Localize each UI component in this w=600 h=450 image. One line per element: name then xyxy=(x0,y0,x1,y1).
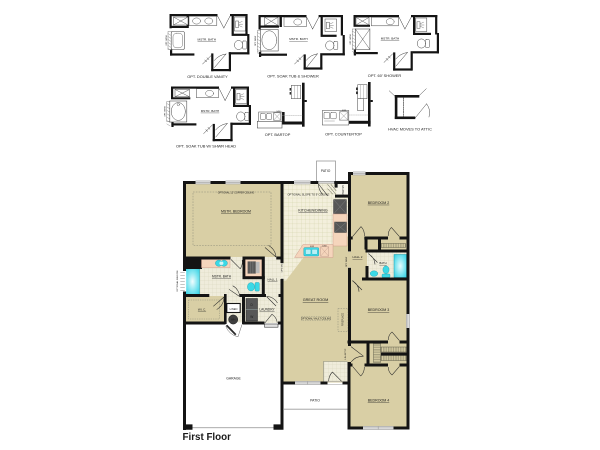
svg-text:OPTIONAL SLOPE TO 9' CEILING: OPTIONAL SLOPE TO 9' CEILING xyxy=(287,192,329,196)
svg-text:HALL 2: HALL 2 xyxy=(353,255,363,259)
svg-text:LIN./ATTIC: LIN./ATTIC xyxy=(344,348,347,359)
svg-text:OPT. WDW: OPT. WDW xyxy=(165,106,167,116)
svg-text:MSTR. BATH: MSTR. BATH xyxy=(198,38,217,42)
svg-text:GARAGE: GARAGE xyxy=(226,376,241,380)
svg-text:OPT. WDW: OPT. WDW xyxy=(166,35,168,45)
svg-text:MSTR. BATH: MSTR. BATH xyxy=(212,275,232,279)
svg-text:MSTR. BATH: MSTR. BATH xyxy=(381,37,400,41)
svg-text:OPT. DOUBLE VANITY: OPT. DOUBLE VANITY xyxy=(187,74,228,79)
svg-text:KITCHEN/DINING: KITCHEN/DINING xyxy=(298,209,328,213)
svg-text:GREAT ROOM: GREAT ROOM xyxy=(303,298,329,302)
svg-text:MSTR. BATH: MSTR. BATH xyxy=(201,109,220,113)
svg-text:PATIO: PATIO xyxy=(321,169,331,173)
svg-text:First Floor: First Floor xyxy=(183,432,232,443)
svg-text:OPT. WDW: OPT. WDW xyxy=(346,257,348,267)
svg-text:BEDROOM 3: BEDROOM 3 xyxy=(368,308,390,312)
svg-text:PANTRY: PANTRY xyxy=(342,185,345,195)
svg-text:OPT. DR.: OPT. DR. xyxy=(282,263,284,272)
svg-text:OPT. WDW: OPT. WDW xyxy=(350,34,352,44)
svg-text:OPT. SOAK TUB W/ SHWR HEAD: OPT. SOAK TUB W/ SHWR HEAD xyxy=(176,143,236,148)
svg-text:HVAC MOVES TO ATTIC: HVAC MOVES TO ATTIC xyxy=(388,127,432,132)
svg-text:WH: WH xyxy=(231,318,235,322)
svg-text:OPT. WDW: OPT. WDW xyxy=(255,36,257,46)
svg-text:MSTR. BEDROOM: MSTR. BEDROOM xyxy=(221,210,251,214)
svg-text:MSTR. BATH: MSTR. BATH xyxy=(289,37,308,41)
svg-text:OPTIONAL WINDOW: OPTIONAL WINDOW xyxy=(176,269,179,291)
svg-text:OPT. COUNTERTOP: OPT. COUNTERTOP xyxy=(325,132,362,137)
svg-text:OPT. SOAK TUB & SHOWER: OPT. SOAK TUB & SHOWER xyxy=(267,73,319,78)
svg-text:LINEN: LINEN xyxy=(230,307,238,311)
svg-text:FIREPLACE: FIREPLACE xyxy=(342,312,345,326)
svg-text:OPTIONAL VAULT CEILING: OPTIONAL VAULT CEILING xyxy=(301,318,331,321)
svg-text:HALL 1: HALL 1 xyxy=(268,277,278,281)
svg-text:W: W xyxy=(250,315,253,319)
svg-text:OPTIONAL 12' COFFER CEILING: OPTIONAL 12' COFFER CEILING xyxy=(218,191,255,194)
svg-text:BEDROOM 4: BEDROOM 4 xyxy=(368,399,390,403)
svg-text:PATIO: PATIO xyxy=(310,399,320,403)
svg-text:OPT. 60' SHOWER: OPT. 60' SHOWER xyxy=(368,73,402,78)
svg-text:LAUNDRY: LAUNDRY xyxy=(259,308,275,312)
svg-text:BATH: BATH xyxy=(379,261,386,265)
svg-text:OPT. BARTOP: OPT. BARTOP xyxy=(265,132,291,137)
svg-text:BEDROOM 2: BEDROOM 2 xyxy=(368,201,390,205)
svg-text:W.I.C.: W.I.C. xyxy=(198,307,206,311)
